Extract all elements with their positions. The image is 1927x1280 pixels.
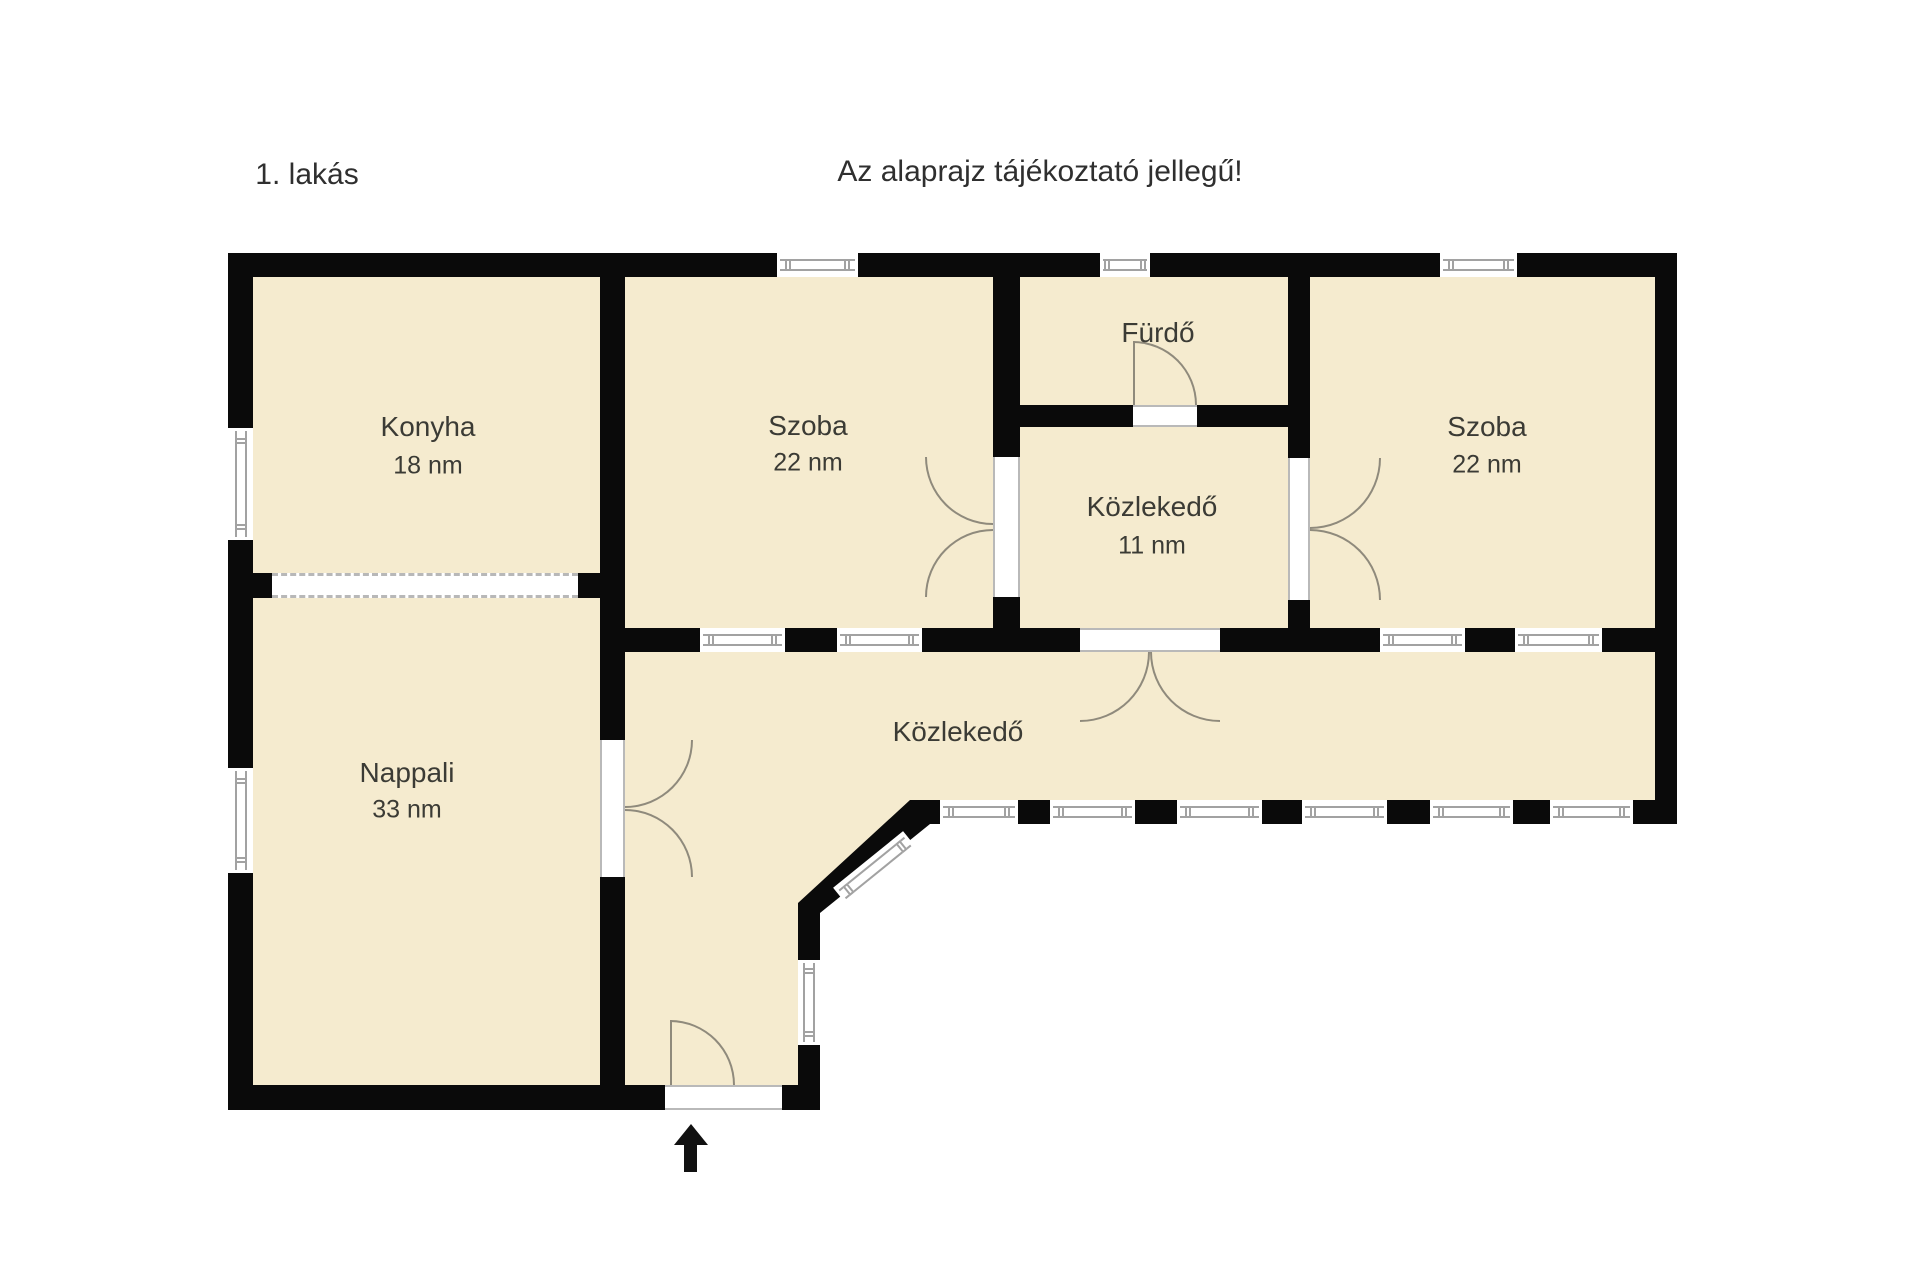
door-szoba-middle	[993, 457, 1020, 597]
window-corridor-north-2	[837, 628, 922, 652]
window-top-szoba-right	[1440, 253, 1517, 277]
window-top-szoba-middle	[777, 253, 858, 277]
label-nappali-area: 33 nm	[372, 796, 441, 825]
label-konyha: Konyha	[381, 411, 476, 443]
window-left-nappali	[228, 768, 253, 873]
window-foyer-east	[798, 960, 820, 1045]
door-furdo	[1133, 405, 1197, 427]
label-kozlekedo-main: Közlekedő	[893, 716, 1024, 748]
wall-stub-divider-east	[578, 573, 600, 598]
disclaimer-text: Az alaprajz tájékoztató jellegű!	[837, 155, 1242, 189]
window-south-5	[1430, 800, 1513, 824]
label-nappali: Nappali	[360, 757, 455, 789]
label-szoba-middle: Szoba	[768, 410, 847, 442]
window-left-konyha	[228, 428, 253, 540]
window-corridor-north-1	[700, 628, 785, 652]
window-corridor-north-4	[1515, 628, 1602, 652]
window-south-3	[1177, 800, 1262, 824]
wall-vertical-west-spine	[600, 277, 625, 1085]
label-konyha-area: 18 nm	[393, 452, 462, 481]
window-corridor-north-3	[1380, 628, 1465, 652]
floor-plan-page: 1. lakás Az alaprajz tájékoztató jellegű…	[0, 0, 1927, 1280]
door-corridor-kozlekedo	[1080, 628, 1220, 652]
label-kozlekedo-small-area: 11 nm	[1118, 532, 1186, 561]
door-entry	[665, 1085, 782, 1110]
window-south-4	[1302, 800, 1387, 824]
window-south-6	[1550, 800, 1633, 824]
label-furdo: Fürdő	[1121, 317, 1194, 349]
wall-stub-divider-west	[253, 573, 272, 598]
door-nappali-foyer	[600, 740, 625, 877]
label-szoba-right: Szoba	[1447, 411, 1526, 443]
door-szoba-right	[1288, 458, 1310, 600]
label-szoba-right-area: 22 nm	[1452, 451, 1521, 480]
window-south-1	[940, 800, 1018, 824]
open-passage-konyha-nappali	[272, 573, 578, 598]
window-top-furdo	[1100, 253, 1150, 277]
window-south-2	[1050, 800, 1135, 824]
label-szoba-middle-area: 22 nm	[773, 449, 842, 478]
label-kozlekedo-small: Közlekedő	[1087, 491, 1218, 523]
unit-title: 1. lakás	[255, 158, 358, 192]
